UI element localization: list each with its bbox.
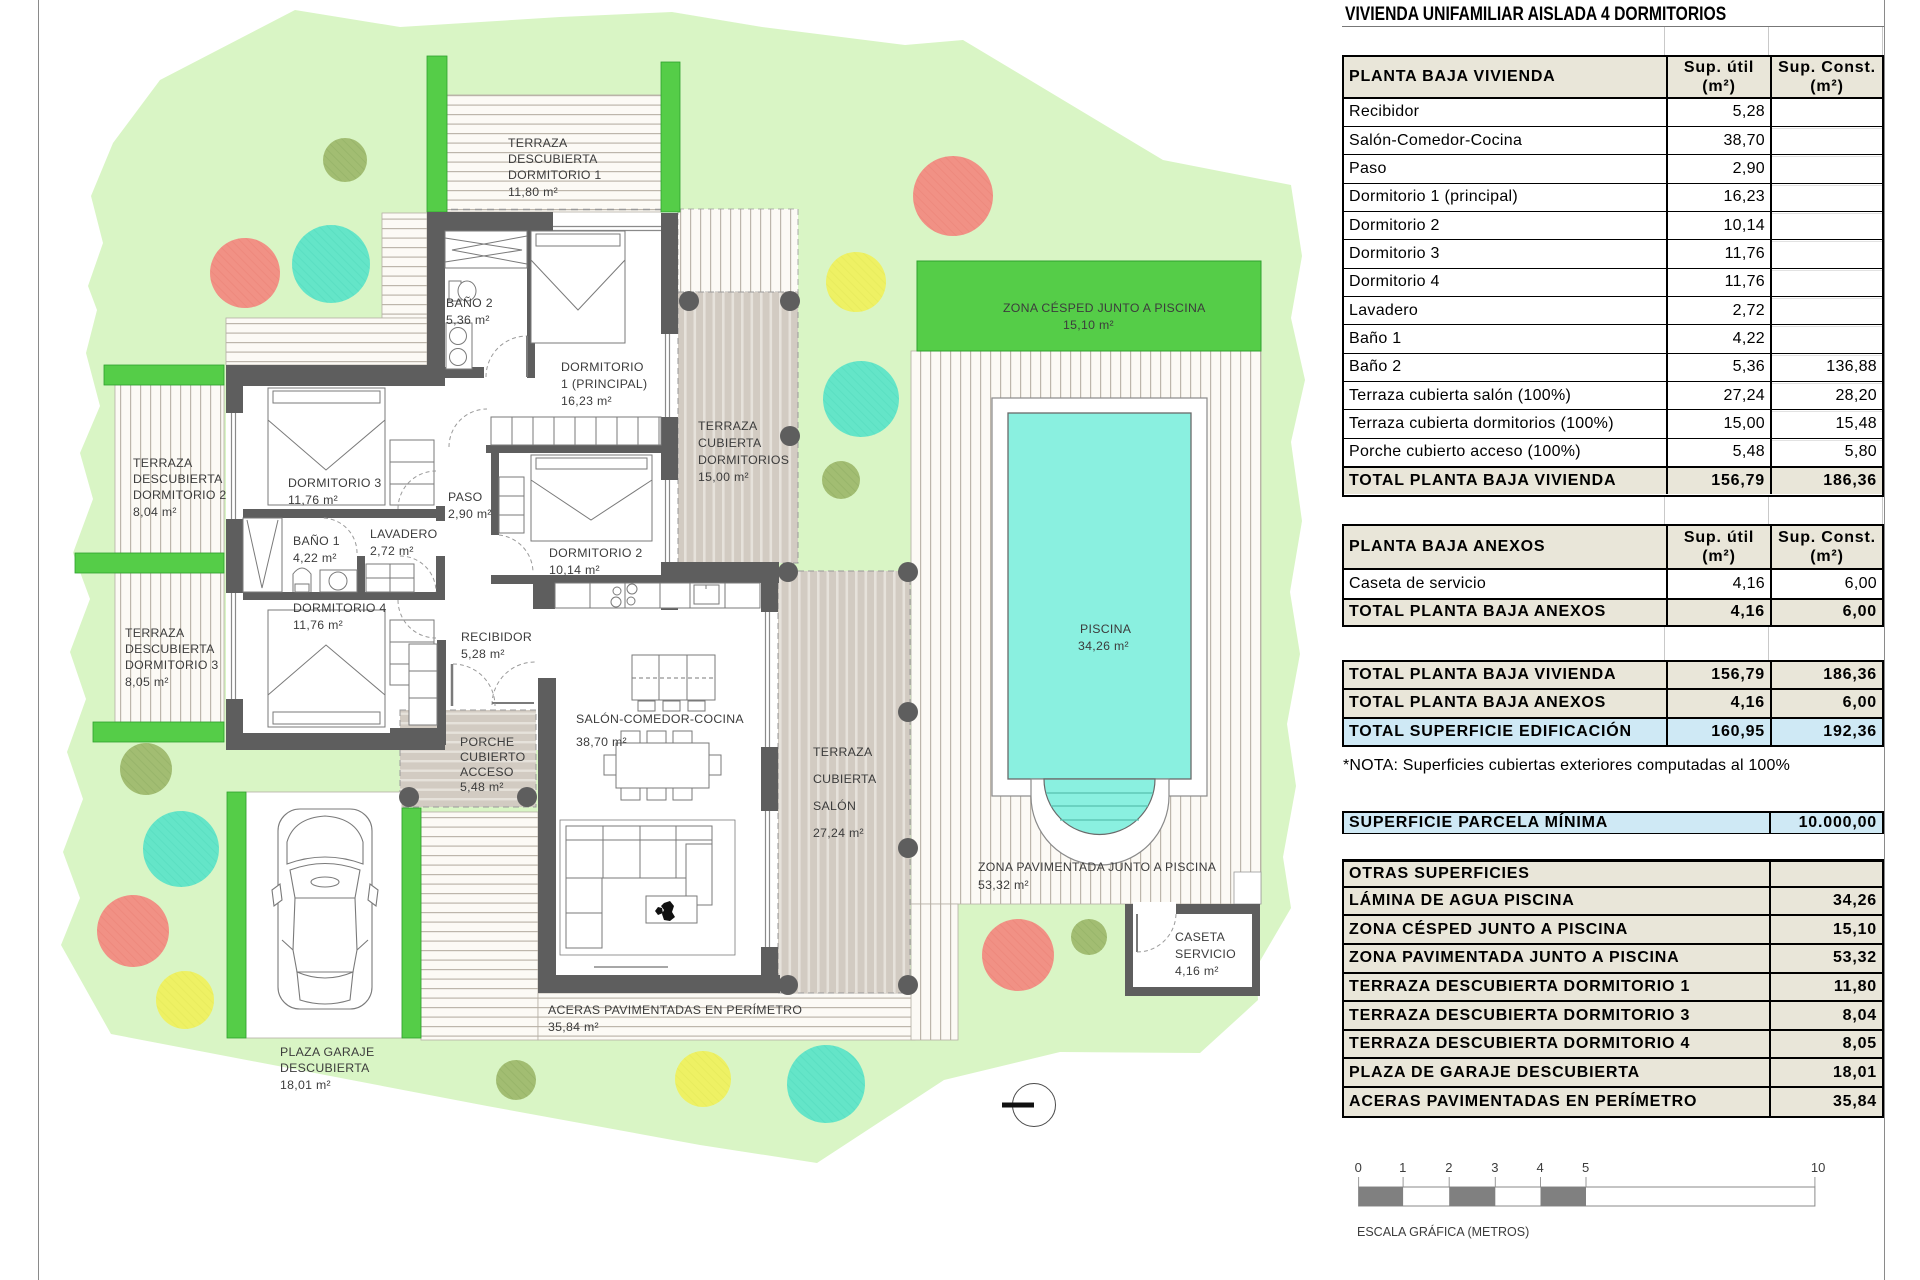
svg-text:TERRAZA: TERRAZA xyxy=(133,456,193,470)
svg-text:LAVADERO: LAVADERO xyxy=(370,527,438,541)
svg-text:ACERAS PAVIMENTADAS EN PERÍMET: ACERAS PAVIMENTADAS EN PERÍMETRO xyxy=(548,1002,802,1017)
svg-text:DORMITORIO: DORMITORIO xyxy=(561,360,644,374)
svg-text:5: 5 xyxy=(1582,1160,1589,1175)
svg-text:ZONA PAVIMENTADA JUNTO A PISCI: ZONA PAVIMENTADA JUNTO A PISCINA xyxy=(978,860,1217,874)
svg-text:11,76 m²: 11,76 m² xyxy=(293,618,343,632)
svg-text:35,84 m²: 35,84 m² xyxy=(548,1020,599,1034)
svg-text:DORMITORIO 3: DORMITORIO 3 xyxy=(288,476,382,490)
svg-text:DORMITORIO 4: DORMITORIO 4 xyxy=(293,601,387,615)
svg-text:2,90 m²: 2,90 m² xyxy=(448,507,492,521)
svg-text:DORMITORIO 2: DORMITORIO 2 xyxy=(133,488,227,502)
svg-text:PLAZA GARAJE: PLAZA GARAJE xyxy=(280,1045,375,1059)
svg-text:PISCINA: PISCINA xyxy=(1080,622,1132,636)
svg-text:PASO: PASO xyxy=(448,490,482,504)
svg-text:3: 3 xyxy=(1491,1160,1498,1175)
svg-text:DESCUBIERTA: DESCUBIERTA xyxy=(125,642,215,656)
svg-text:DORMITORIO 1: DORMITORIO 1 xyxy=(508,168,602,182)
svg-text:11,80 m²: 11,80 m² xyxy=(508,185,558,199)
svg-text:16,23 m²: 16,23 m² xyxy=(561,394,612,408)
svg-text:2: 2 xyxy=(1445,1160,1452,1175)
svg-text:BAÑO 1: BAÑO 1 xyxy=(293,534,340,548)
svg-text:4,22 m²: 4,22 m² xyxy=(293,551,337,565)
svg-text:BAÑO 2: BAÑO 2 xyxy=(446,296,493,310)
svg-text:4: 4 xyxy=(1537,1160,1544,1175)
svg-text:5,28 m²: 5,28 m² xyxy=(461,647,505,661)
svg-text:8,05 m²: 8,05 m² xyxy=(125,675,169,689)
svg-text:38,70 m²: 38,70 m² xyxy=(576,735,627,749)
svg-text:15,10 m²: 15,10 m² xyxy=(1063,318,1114,332)
svg-text:SALÓN-COMEDOR-COCINA: SALÓN-COMEDOR-COCINA xyxy=(576,711,744,726)
svg-text:ZONA CÉSPED JUNTO A PISCINA: ZONA CÉSPED JUNTO A PISCINA xyxy=(1003,300,1206,315)
svg-text:34,26 m²: 34,26 m² xyxy=(1078,639,1129,653)
svg-text:DESCUBIERTA: DESCUBIERTA xyxy=(508,152,598,166)
svg-text:5,48 m²: 5,48 m² xyxy=(460,780,504,794)
svg-text:11,76 m²: 11,76 m² xyxy=(288,493,338,507)
svg-text:DESCUBIERTA: DESCUBIERTA xyxy=(133,472,223,486)
svg-text:CUBIERTO: CUBIERTO xyxy=(460,750,526,764)
svg-text:ACCESO: ACCESO xyxy=(460,765,514,779)
svg-text:DORMITORIO 3: DORMITORIO 3 xyxy=(125,658,219,672)
svg-text:18,01 m²: 18,01 m² xyxy=(280,1078,331,1092)
svg-text:SERVICIO: SERVICIO xyxy=(1175,947,1236,961)
svg-text:4,16 m²: 4,16 m² xyxy=(1175,964,1219,978)
svg-text:8,04 m²: 8,04 m² xyxy=(133,505,177,519)
svg-text:0: 0 xyxy=(1355,1160,1362,1175)
svg-text:1 (PRINCIPAL): 1 (PRINCIPAL) xyxy=(561,377,647,391)
svg-text:15,00 m²: 15,00 m² xyxy=(698,470,749,484)
svg-text:TERRAZA: TERRAZA xyxy=(698,419,758,433)
svg-text:10,14 m²: 10,14 m² xyxy=(549,563,600,577)
svg-text:TERRAZA: TERRAZA xyxy=(125,626,185,640)
svg-text:2,72 m²: 2,72 m² xyxy=(370,544,414,558)
svg-text:DORMITORIO 2: DORMITORIO 2 xyxy=(549,546,643,560)
svg-text:TERRAZA: TERRAZA xyxy=(813,745,873,759)
svg-text:27,24 m²: 27,24 m² xyxy=(813,826,864,840)
svg-text:SALÓN: SALÓN xyxy=(813,798,856,813)
svg-text:CUBIERTA: CUBIERTA xyxy=(698,436,762,450)
svg-text:ESCALA GRÁFICA (METROS): ESCALA GRÁFICA (METROS) xyxy=(1357,1224,1529,1239)
svg-text:5,36 m²: 5,36 m² xyxy=(446,313,490,327)
svg-text:DESCUBIERTA: DESCUBIERTA xyxy=(280,1061,370,1075)
svg-text:RECIBIDOR: RECIBIDOR xyxy=(461,630,532,644)
svg-text:10: 10 xyxy=(1811,1160,1825,1175)
svg-text:TERRAZA: TERRAZA xyxy=(508,136,568,150)
svg-text:DORMITORIOS: DORMITORIOS xyxy=(698,453,789,467)
svg-text:1: 1 xyxy=(1399,1160,1406,1175)
svg-text:PORCHE: PORCHE xyxy=(460,735,514,749)
svg-text:CUBIERTA: CUBIERTA xyxy=(813,772,877,786)
svg-text:53,32 m²: 53,32 m² xyxy=(978,878,1029,892)
svg-text:CASETA: CASETA xyxy=(1175,930,1226,944)
